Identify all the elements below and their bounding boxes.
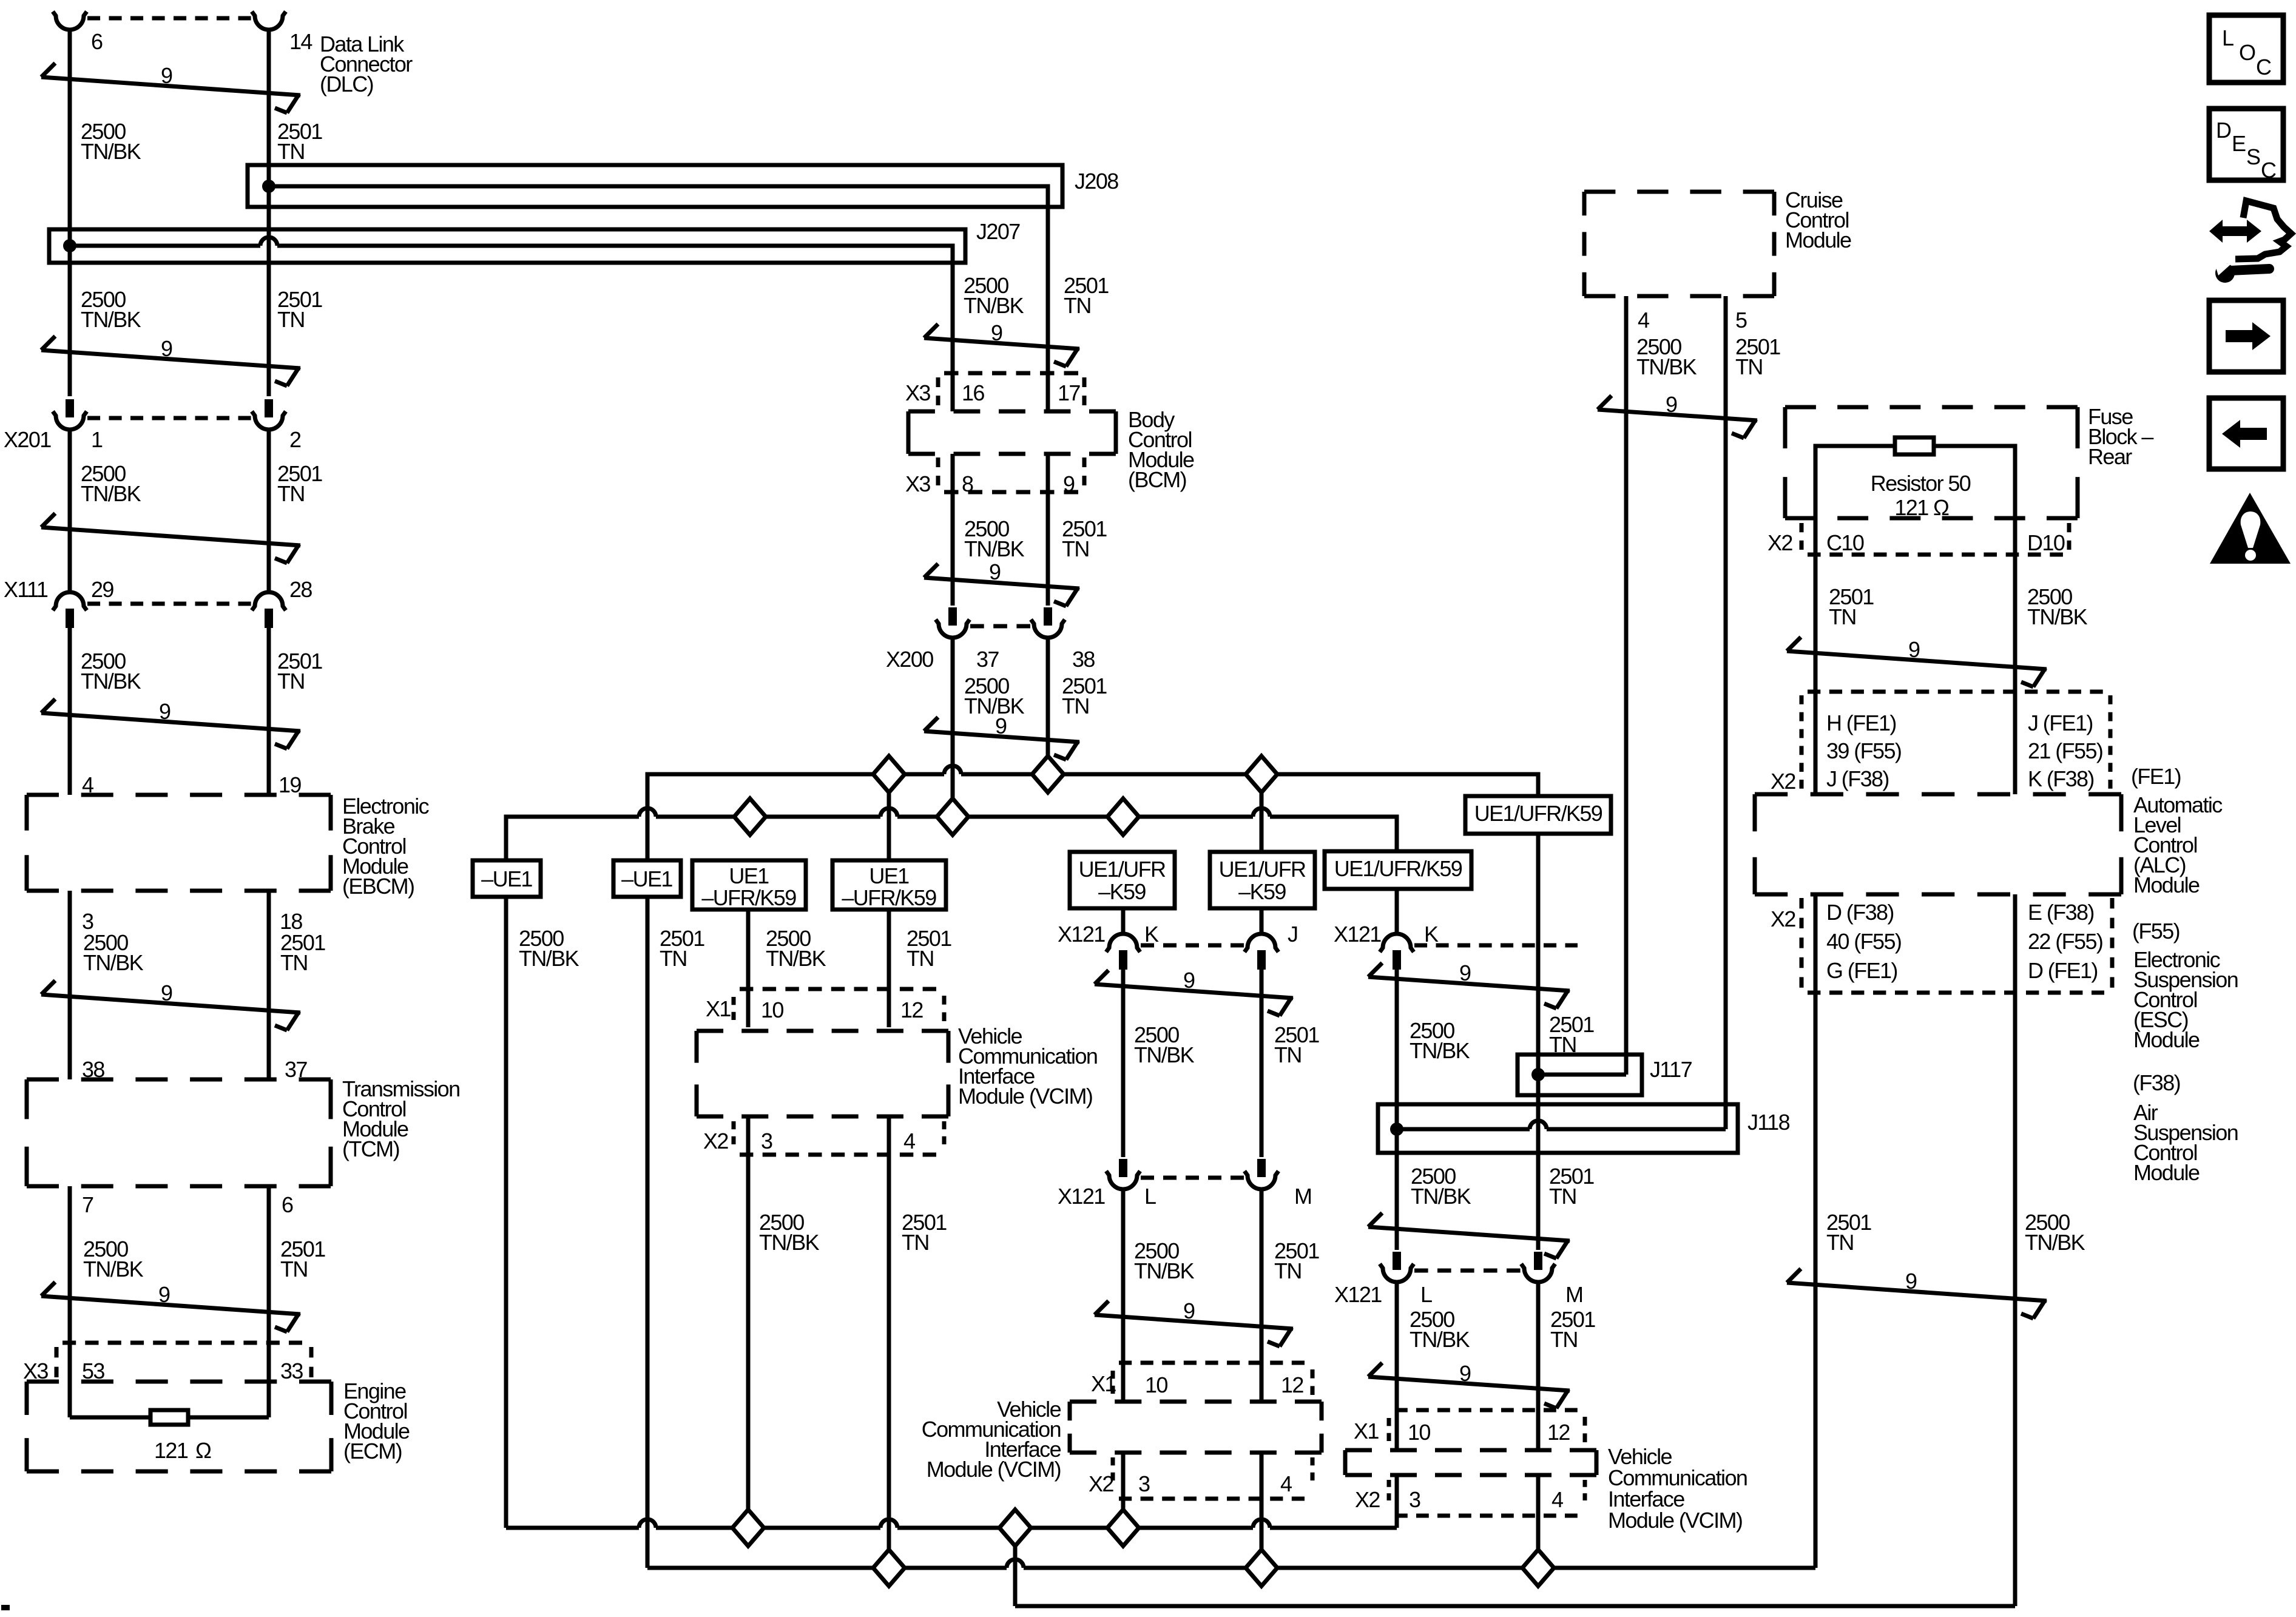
svg-text:S: S <box>2246 144 2260 169</box>
svg-text:J (FE1): J (FE1) <box>2028 711 2093 735</box>
svg-text:–UFR/K59: –UFR/K59 <box>701 885 796 910</box>
svg-text:4: 4 <box>1638 308 1649 333</box>
svg-text:J117: J117 <box>1650 1057 1692 1082</box>
svg-text:X121: X121 <box>1334 922 1381 947</box>
svg-text:12: 12 <box>1547 1420 1570 1445</box>
svg-text:TN: TN <box>277 669 305 694</box>
svg-text:TN: TN <box>1062 536 1089 561</box>
svg-text:10: 10 <box>1145 1372 1167 1397</box>
svg-text:L: L <box>1420 1282 1432 1307</box>
svg-text:39 (F55): 39 (F55) <box>1826 738 1901 763</box>
svg-text:TN/BK: TN/BK <box>2027 604 2088 629</box>
svg-text:Module: Module <box>2133 1027 2200 1052</box>
svg-text:L: L <box>1144 1184 1156 1209</box>
svg-text:TN: TN <box>1826 1230 1854 1255</box>
svg-text:TN/BK: TN/BK <box>81 307 141 332</box>
svg-text:K (F38): K (F38) <box>2028 766 2094 791</box>
svg-text:X2: X2 <box>1355 1487 1380 1512</box>
svg-text:9: 9 <box>1459 960 1471 985</box>
svg-text:J207: J207 <box>976 219 1020 244</box>
svg-text:TN/BK: TN/BK <box>964 293 1024 318</box>
svg-text:3: 3 <box>1138 1471 1150 1496</box>
svg-text:Module: Module <box>2133 1160 2200 1185</box>
svg-text:TN: TN <box>277 481 305 506</box>
svg-text:(TCM): (TCM) <box>342 1136 399 1161</box>
svg-text:38: 38 <box>1072 647 1095 672</box>
svg-text:Module (VCIM): Module (VCIM) <box>1608 1508 1742 1533</box>
svg-text:X2: X2 <box>1771 906 1795 931</box>
svg-text:TN: TN <box>280 950 308 975</box>
svg-text:9: 9 <box>161 981 172 1005</box>
svg-text:K: K <box>1144 922 1159 947</box>
svg-text:9: 9 <box>1908 637 1920 662</box>
svg-text:3: 3 <box>761 1129 772 1153</box>
svg-text:–UE1: –UE1 <box>481 866 532 891</box>
svg-text:6: 6 <box>282 1192 293 1217</box>
svg-text:9: 9 <box>1905 1269 1917 1294</box>
svg-text:Resistor 50: Resistor 50 <box>1871 471 1971 496</box>
svg-text:Rear: Rear <box>2088 444 2132 469</box>
svg-text:2: 2 <box>289 427 301 452</box>
svg-text:9: 9 <box>1183 1298 1195 1323</box>
svg-text:TN: TN <box>907 946 934 971</box>
svg-text:E (F38): E (F38) <box>2028 900 2094 925</box>
svg-text:7: 7 <box>82 1192 93 1217</box>
svg-text:28: 28 <box>289 577 312 602</box>
svg-text:(FE1): (FE1) <box>2131 764 2181 789</box>
svg-text:G (FE1): G (FE1) <box>1826 958 1897 983</box>
svg-text:X1: X1 <box>1354 1419 1379 1443</box>
svg-text:TN/BK: TN/BK <box>766 946 826 971</box>
svg-text:UE1: UE1 <box>729 863 769 888</box>
svg-text:(ECM): (ECM) <box>343 1439 402 1463</box>
svg-text:9: 9 <box>995 714 1007 738</box>
svg-text:X121: X121 <box>1058 1184 1105 1209</box>
svg-text:C: C <box>2256 55 2271 79</box>
svg-text:L: L <box>2222 25 2234 50</box>
svg-text:9: 9 <box>161 336 172 361</box>
svg-text:TN: TN <box>1274 1042 1302 1067</box>
svg-text:D10: D10 <box>2027 530 2065 555</box>
svg-text:J (F38): J (F38) <box>1826 766 1889 791</box>
svg-text:40 (F55): 40 (F55) <box>1826 929 1901 954</box>
svg-text:TN: TN <box>1274 1258 1302 1283</box>
svg-text:TN: TN <box>1062 694 1089 718</box>
svg-text:TN/BK: TN/BK <box>81 139 141 164</box>
svg-text:9: 9 <box>989 559 1001 584</box>
svg-text:TN: TN <box>1735 354 1763 379</box>
svg-text:–K59: –K59 <box>1098 879 1146 904</box>
svg-text:TN/BK: TN/BK <box>964 536 1025 561</box>
svg-text:(DLC): (DLC) <box>320 72 373 96</box>
svg-text:Module (VCIM): Module (VCIM) <box>958 1084 1092 1109</box>
svg-text:K: K <box>1424 922 1439 947</box>
svg-text:37: 37 <box>976 647 999 672</box>
svg-text:Module (VCIM): Module (VCIM) <box>927 1457 1061 1482</box>
svg-text:TN: TN <box>1829 604 1856 629</box>
svg-text:H (FE1): H (FE1) <box>1826 711 1896 735</box>
svg-text:6: 6 <box>91 29 103 54</box>
svg-text:12: 12 <box>900 998 923 1022</box>
svg-text:17: 17 <box>1058 380 1080 405</box>
svg-text:X111: X111 <box>4 577 48 602</box>
svg-text:14: 14 <box>289 29 312 54</box>
svg-text:X2: X2 <box>1089 1471 1113 1496</box>
svg-text:TN/BK: TN/BK <box>759 1230 820 1255</box>
svg-text:D: D <box>2216 118 2231 143</box>
svg-text:E: E <box>2232 131 2246 156</box>
svg-text:TN: TN <box>660 946 687 971</box>
svg-text:Ω: Ω <box>1933 495 1949 520</box>
svg-text:X121: X121 <box>1334 1282 1382 1307</box>
svg-text:TN/BK: TN/BK <box>81 669 141 694</box>
svg-text:TN: TN <box>280 1257 308 1281</box>
svg-text:TN/BK: TN/BK <box>964 694 1025 718</box>
svg-text:D (FE1): D (FE1) <box>2028 958 2098 983</box>
svg-text:X3: X3 <box>905 471 930 496</box>
svg-text:TN/BK: TN/BK <box>81 481 141 506</box>
svg-text:19: 19 <box>279 772 301 797</box>
svg-text:8: 8 <box>962 471 973 496</box>
svg-text:M: M <box>1294 1184 1311 1209</box>
svg-text:C: C <box>2261 158 2276 183</box>
svg-text:UE1: UE1 <box>869 863 909 888</box>
svg-text:TN/BK: TN/BK <box>1410 1327 1470 1352</box>
svg-text:J118: J118 <box>1747 1110 1790 1135</box>
svg-text:TN/BK: TN/BK <box>1410 1038 1470 1063</box>
svg-text:TN/BK: TN/BK <box>519 946 579 971</box>
svg-text:TN/BK: TN/BK <box>2025 1230 2085 1255</box>
svg-text:TN/BK: TN/BK <box>1636 354 1697 379</box>
svg-text:X200: X200 <box>886 647 933 672</box>
svg-text:3: 3 <box>1409 1487 1420 1512</box>
svg-text:(BCM): (BCM) <box>1128 467 1186 492</box>
svg-text:9: 9 <box>1183 968 1195 993</box>
svg-text:29: 29 <box>91 577 113 602</box>
svg-text:9: 9 <box>1063 471 1075 496</box>
svg-text:O: O <box>2239 40 2255 65</box>
svg-text:J: J <box>1288 922 1297 947</box>
svg-text:4: 4 <box>1280 1471 1292 1496</box>
svg-text:–K59: –K59 <box>1238 879 1286 904</box>
svg-text:X121: X121 <box>1058 922 1105 947</box>
svg-text:TN: TN <box>1549 1184 1576 1209</box>
svg-text:121: 121 <box>154 1438 188 1463</box>
svg-text:X2: X2 <box>703 1129 728 1153</box>
svg-text:UE1/UFR/K59: UE1/UFR/K59 <box>1474 801 1602 826</box>
svg-text:M: M <box>1565 1282 1582 1307</box>
svg-text:1: 1 <box>91 427 103 452</box>
svg-text:9: 9 <box>1459 1361 1471 1386</box>
svg-text:TN/BK: TN/BK <box>1411 1184 1471 1209</box>
svg-text:TN: TN <box>1550 1327 1578 1352</box>
svg-text:–UE1: –UE1 <box>621 866 672 891</box>
svg-text:4: 4 <box>1551 1487 1563 1512</box>
svg-text:TN/BK: TN/BK <box>1134 1258 1195 1283</box>
svg-text:C10: C10 <box>1826 530 1864 555</box>
svg-text:22 (F55): 22 (F55) <box>2028 929 2102 954</box>
svg-text:J208: J208 <box>1075 169 1118 194</box>
svg-text:10: 10 <box>1408 1420 1430 1445</box>
svg-text:Ω: Ω <box>195 1438 211 1463</box>
svg-text:X201: X201 <box>4 427 51 452</box>
svg-text:16: 16 <box>962 380 984 405</box>
svg-text:X1: X1 <box>1091 1371 1116 1396</box>
svg-text:9: 9 <box>161 63 172 88</box>
svg-text:X3: X3 <box>905 380 930 405</box>
svg-text:TN: TN <box>277 139 305 164</box>
svg-text:X2: X2 <box>1771 769 1795 794</box>
svg-text:Module: Module <box>1785 228 1851 252</box>
svg-text:TN/BK: TN/BK <box>83 950 144 975</box>
svg-text:9: 9 <box>991 320 1002 345</box>
svg-text:–UFR/K59: –UFR/K59 <box>842 885 936 910</box>
svg-text:UE1/UFR: UE1/UFR <box>1079 857 1166 882</box>
svg-text:9: 9 <box>1666 392 1677 417</box>
svg-text:TN: TN <box>277 307 305 332</box>
svg-text:10: 10 <box>761 998 783 1022</box>
svg-text:121: 121 <box>1894 495 1928 520</box>
svg-text:X2: X2 <box>1768 530 1792 555</box>
svg-text:X1: X1 <box>706 996 731 1021</box>
svg-text:UE1/UFR: UE1/UFR <box>1219 857 1306 882</box>
svg-text:12: 12 <box>1281 1372 1303 1397</box>
svg-text:Module: Module <box>2133 873 2200 897</box>
svg-text:4: 4 <box>903 1129 915 1153</box>
svg-text:TN/BK: TN/BK <box>83 1257 144 1281</box>
svg-text:D (F38): D (F38) <box>1826 900 1894 925</box>
svg-text:UE1/UFR/K59: UE1/UFR/K59 <box>1334 856 1462 881</box>
svg-text:TN/BK: TN/BK <box>1134 1042 1195 1067</box>
svg-text:TN: TN <box>1064 293 1091 318</box>
svg-text:5: 5 <box>1735 308 1747 333</box>
svg-text:TN: TN <box>902 1230 929 1255</box>
svg-text:21 (F55): 21 (F55) <box>2028 738 2102 763</box>
svg-text:(F55): (F55) <box>2132 919 2180 944</box>
svg-text:9: 9 <box>158 1282 170 1307</box>
svg-text:(EBCM): (EBCM) <box>342 874 414 899</box>
svg-text:(F38): (F38) <box>2133 1070 2180 1095</box>
svg-text:9: 9 <box>159 699 171 724</box>
